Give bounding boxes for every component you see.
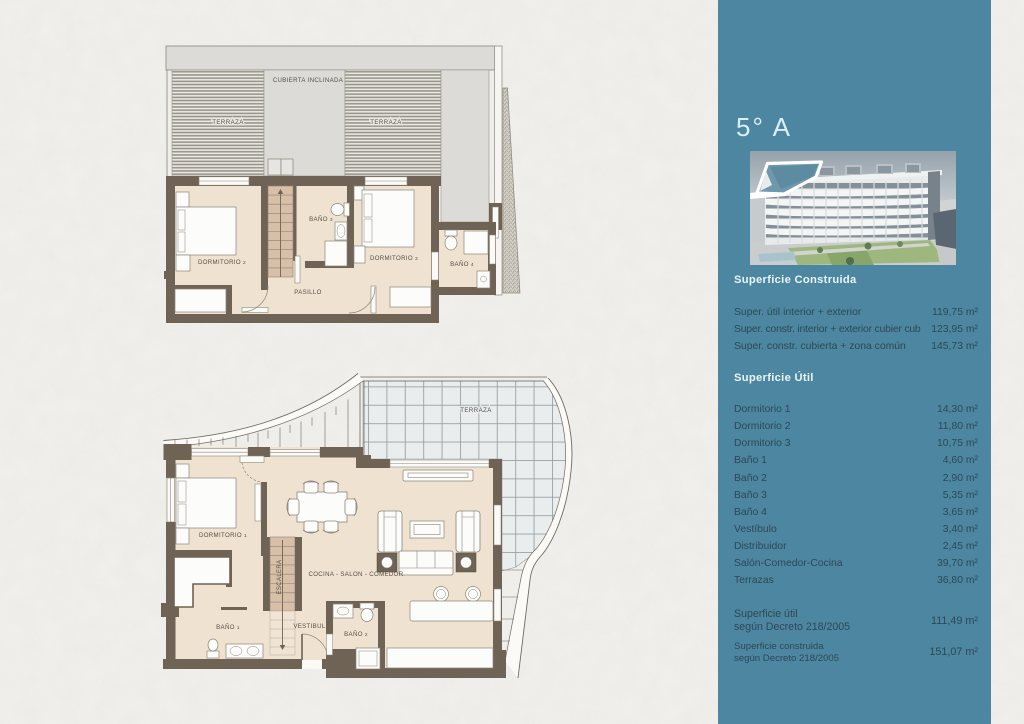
svg-text:CUBIERTA INCLINADA: CUBIERTA INCLINADA: [273, 77, 344, 84]
svg-text:DORMITORIO 3: DORMITORIO 3: [370, 255, 418, 262]
svg-text:TERRAZA: TERRAZA: [370, 119, 402, 126]
svg-text:BAÑO 4: BAÑO 4: [450, 261, 474, 268]
svg-text:BAÑO 3: BAÑO 3: [309, 216, 333, 223]
svg-text:TERRAZA: TERRAZA: [212, 119, 244, 126]
svg-text:COCINA - SALON - COMEDOR: COCINA - SALON - COMEDOR: [308, 571, 403, 578]
svg-text:VESTIBULO: VESTIBULO: [293, 623, 330, 630]
svg-text:BAÑO 2: BAÑO 2: [344, 631, 368, 638]
svg-text:DORMITORIO 1: DORMITORIO 1: [199, 532, 247, 539]
svg-text:PASILLO: PASILLO: [294, 289, 321, 296]
svg-text:BAÑO 1: BAÑO 1: [216, 624, 240, 631]
svg-text:TERRAZA: TERRAZA: [460, 407, 492, 414]
svg-text:DORMITORIO 2: DORMITORIO 2: [198, 259, 246, 266]
svg-text:ESCALERA: ESCALERA: [277, 560, 283, 595]
